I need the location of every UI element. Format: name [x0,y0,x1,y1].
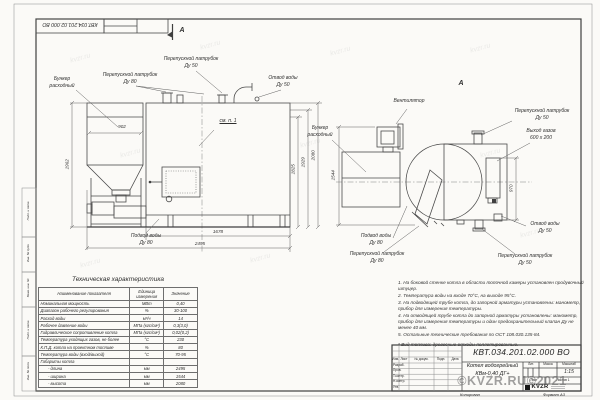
dim-body-length: 1678 [196,230,240,235]
format-label: Формат А3 [528,393,580,397]
spec-cell: 2495 [164,365,198,372]
callout-bypass-50-top: Перепускной патрубок Ду 50 [503,108,581,121]
spec-header: Значение [164,288,198,301]
spec-cell: мм [130,380,164,387]
spec-cell: °С [130,336,164,343]
spec-row: Номинальная мощностьМВт0,40 [39,300,198,307]
spec-table: Наименование показателя Единица измерени… [38,287,198,388]
spec-row: Габариты котла [39,358,198,365]
callout-water-inlet-side: Подвод воды Ду 80 [348,233,404,246]
spec-cell: м³/ч [130,315,164,322]
copied-label: Копировал [430,393,510,397]
spec-header-row: Наименование показателя Единица измерени… [39,288,198,301]
dim-h2: 1929 [302,148,307,176]
callout-size: Ду 50 [486,260,564,267]
spec-cell: 2080 [164,380,198,387]
section-mark-a: А [176,26,188,35]
spec-cell: Расход воды [39,315,130,322]
dim-total-length: 2495 [178,242,222,247]
spec-cell: 0,02(0,2) [164,329,198,336]
callout-size: Ду 80 [338,258,416,265]
spec-cell: Номинальная мощность [39,300,130,307]
callout-size: Ду 50 [503,115,581,122]
margin-label: Инв. № подл. [27,351,31,391]
spec-cell: мм [130,373,164,380]
spec-row: Гидравлическое сопротивление котлаМПа (к… [39,329,198,336]
callout-size: Ду 50 [518,228,572,235]
tb-col-podp: Подп. [434,358,448,362]
tb-row-nkontr: Н.контр. [393,380,413,384]
tb-col-data: Дата [448,358,462,362]
spec-cell [130,358,164,365]
spec-row: Рабочее давление водыМПа (кгс/см²)0,3(3,… [39,322,198,329]
watermark-big: ©KVZR.RU©2021 [424,374,600,388]
note-item: 2. Температура воды на входе 70°С, на вы… [398,293,584,299]
spec-cell: Габариты котла [39,358,130,365]
top-corner-stamp: КВТ.034.201.02.000 ВО [38,20,102,27]
spec-cell: % [130,344,164,351]
spec-cell: 80 [164,344,198,351]
callout-size: Ду 50 [152,63,230,70]
callout-hopper: Бункер расходный [36,76,88,89]
tb-lit-label: Лит. [523,363,539,367]
dim-height-left: 1962 [66,150,71,178]
spec-cell: 1544 [164,373,198,380]
spec-cell: % [130,307,164,314]
note-item: 5. Остальные технические требования по О… [398,332,584,338]
callout-size: Ду 50 [257,82,309,89]
spec-row: - ширинамм1544 [39,373,198,380]
callout-line: Перепускной патрубок [92,72,168,79]
spec-cell: К.П.Д. котла на проектном топливе [39,344,130,351]
spec-cell: мм [130,365,164,372]
spec-cell: Рабочее давление воды [39,322,130,329]
spec-cell: 0,3(3,0) [164,322,198,329]
spec-cell: - высота [39,380,130,387]
spec-cell: 30-100 [164,307,198,314]
dim-hopper-width: 902 [108,125,136,130]
tb-scale-label: Масштаб [557,363,581,367]
spec-row: - высотамм2080 [39,380,198,387]
tb-col-list: Лист [399,358,409,362]
tb-col-doc: № докум. [409,358,434,362]
side-view [336,124,532,231]
margin-label: Инв. № дубл. [27,233,31,273]
tb-row-razrab: Разраб. [393,364,413,368]
tb-row-tkontr: Т.контр. [393,375,413,379]
callout-line: расходный [36,83,88,90]
note-item: 4. На отводящей трубе котла до запорной … [398,313,584,330]
view-mark-a: А [455,79,467,88]
callout-gas-exit: Выход газов 600 х 200 [512,128,570,141]
spec-cell: 14 [164,315,198,322]
spec-cell: МВт [130,300,164,307]
spec-cell: Гидравлическое сопротивление котла [39,329,130,336]
doc-number: КВТ.034.201.02.000 ВО [462,348,581,357]
callout-fan: Вентилятор [380,98,438,105]
note-item: 1. На боковой стенке котла в области топ… [398,280,584,291]
spec-cell: МПа (кгс/см²) [130,322,164,329]
spec-cell: 0,40 [164,300,198,307]
dim-gas-offset: 970 [510,174,515,202]
margin-label: Подп. и дата [27,307,31,353]
callout-bypass-50-bottom: Перепускной патрубок Ду 50 [486,253,564,266]
notes-block: 1. На боковой стенке котла в области топ… [398,280,584,349]
callout-size: Ду 80 [92,79,168,86]
spec-header: Наименование показателя [39,288,130,301]
callout-water-outlet: Отвод воды Ду 50 [257,75,309,88]
callout-bypass-80: Перепускной патрубок Ду 80 [92,72,168,85]
callout-size: Ду 80 [348,240,404,247]
spec-row: - длинамм2495 [39,365,198,372]
drawing-sheet: kvzr.ru kvzr.ru kvzr.ru kvzr.ru kvzr.ru … [0,0,600,400]
see-note-label: см. п. 1 [212,118,244,125]
spec-row: Температура уходящих газов, не более°С23… [39,336,198,343]
callout-line: расходный [294,132,346,139]
callout-bypass-80-side: Перепускной патрубок Ду 80 [338,251,416,264]
tb-row-utv: Утв. [393,386,413,390]
spec-header: Единица измерения [130,288,164,301]
dim-width: 1544 [332,161,337,189]
spec-cell [164,358,198,365]
margin-label: Подп. и дата [27,188,31,234]
callout-water-inlet: Подвод воды Ду 80 [118,233,174,246]
callout-water-outlet-side: Отвод воды Ду 50 [518,221,572,234]
spec-cell: - длина [39,365,130,372]
callout-hopper-side: Бункер расходный [294,125,346,138]
spec-cell: 230 [164,336,198,343]
tb-row-prov: Пров. [393,369,413,373]
dim-h1: 1825 [292,155,297,183]
spec-cell: 70-95 [164,351,198,358]
callout-size: 600 х 200 [512,135,570,142]
spec-table-title: Техническая характеристика [38,276,198,284]
callout-bypass-50: Перепускной патрубок Ду 50 [152,56,230,69]
margin-label: Взам. инв. № [27,268,31,308]
spec-cell: Температура уходящих газов, не более [39,336,130,343]
spec-cell: МПа (кгс/см²) [130,329,164,336]
note-item: 3. На подводящей трубе котла, до запорно… [398,300,584,311]
spec-row: Температура воды (вход/выход)°С70-95 [39,351,198,358]
spec-cell: °С [130,351,164,358]
spec-cell: - ширина [39,373,130,380]
spec-row: Расход водым³/ч14 [39,315,198,322]
dim-h3: 2080 [312,141,317,169]
callout-size: Ду 80 [118,240,174,247]
product-title-line1: Котел водогрейный [462,364,523,370]
spec-cell: Температура воды (вход/выход) [39,351,130,358]
tb-mass-label: Масса [539,363,557,367]
spec-cell: Диапазон рабочего регулирования [39,307,130,314]
spec-row: Диапазон рабочего регулирования%30-100 [39,307,198,314]
spec-row: К.П.Д. котла на проектном топливе%80 [39,344,198,351]
